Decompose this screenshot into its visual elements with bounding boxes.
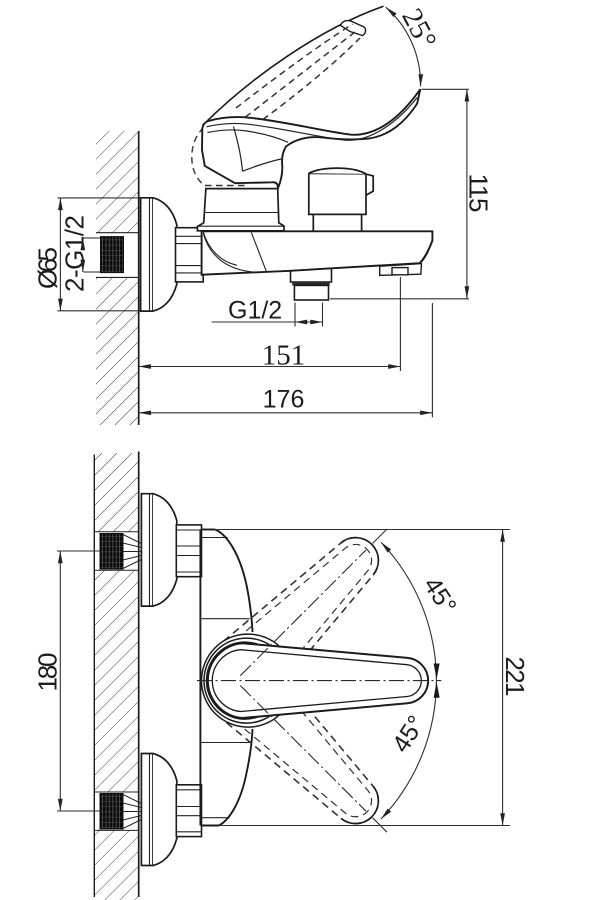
svg-text:180: 180 [33,653,63,692]
svg-text:2-G1/2: 2-G1/2 [60,215,90,292]
svg-text:176: 176 [263,386,305,414]
svg-text:Ø65: Ø65 [33,247,63,289]
svg-text:115: 115 [464,174,494,213]
svg-text:221: 221 [500,657,530,697]
svg-text:151: 151 [262,340,306,372]
svg-text:G1/2: G1/2 [228,297,282,325]
